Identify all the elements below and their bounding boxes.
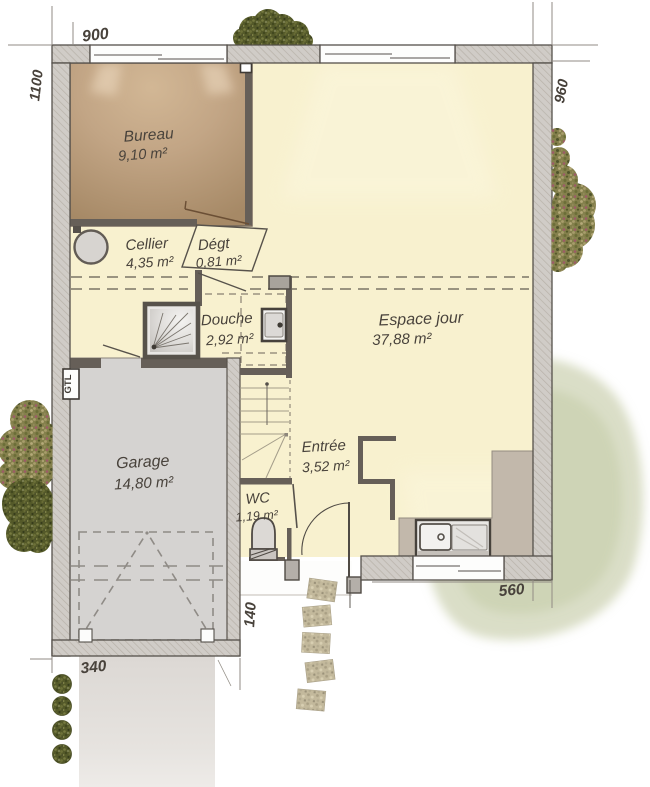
svg-text:Dégt: Dégt [197, 235, 231, 254]
svg-text:37,88 m²: 37,88 m² [372, 330, 433, 349]
svg-text:Douche: Douche [201, 310, 254, 330]
svg-text:14,80 m²: 14,80 m² [114, 473, 175, 493]
svg-text:4,35 m²: 4,35 m² [126, 253, 176, 272]
svg-text:2,92 m²: 2,92 m² [205, 330, 256, 349]
svg-text:GTL: GTL [63, 374, 74, 393]
svg-text:Cellier: Cellier [125, 235, 169, 254]
svg-text:140: 140 [241, 601, 260, 628]
svg-text:WC: WC [245, 490, 271, 508]
svg-text:Espace jour: Espace jour [378, 310, 464, 330]
svg-text:Bureau: Bureau [123, 125, 174, 145]
svg-text:900: 900 [81, 25, 110, 45]
svg-text:560: 560 [498, 581, 526, 600]
svg-text:340: 340 [80, 658, 108, 678]
svg-text:Entrée: Entrée [301, 437, 346, 456]
svg-text:Garage: Garage [116, 453, 170, 473]
svg-text:3,52 m²: 3,52 m² [302, 457, 352, 476]
